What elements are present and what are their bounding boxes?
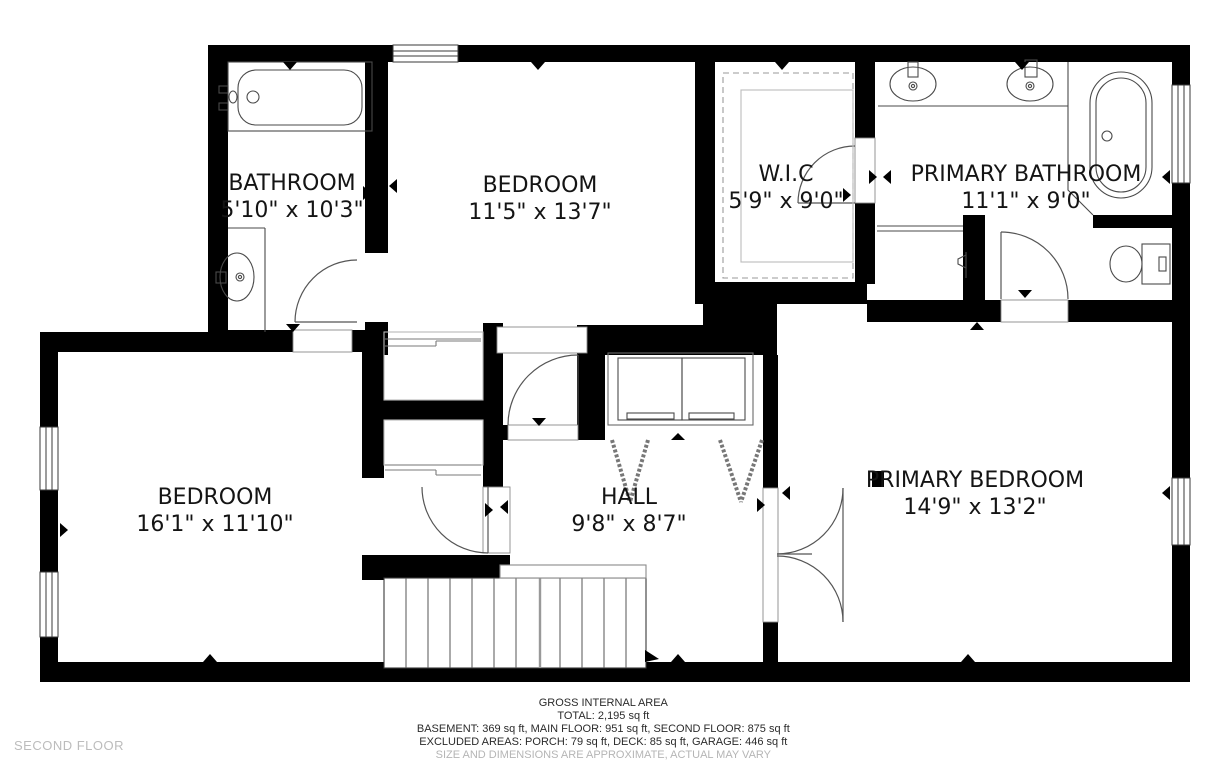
primary-bathroom-door: [1001, 232, 1068, 299]
toilet: [1110, 244, 1170, 284]
room-name: PRIMARY BEDROOM: [866, 467, 1084, 494]
stairs: [384, 565, 659, 668]
primary-bedroom-double-door: [777, 488, 843, 622]
hall-closet: [608, 353, 753, 425]
bedroom-left-door: [422, 487, 488, 553]
floor-plan-canvas: [0, 0, 1229, 768]
area-per-floor: BASEMENT: 369 sq ft, MAIN FLOOR: 951 sq …: [417, 723, 790, 736]
room-dimensions: 14'9" x 13'2": [866, 494, 1084, 521]
room-dimensions: 11'5" x 13'7": [468, 199, 611, 226]
room-name: BEDROOM: [136, 484, 293, 511]
fixtures: [216, 60, 1170, 668]
floor-plan-page: BATHROOM 5'10" x 10'3" BEDROOM 11'5" x 1…: [0, 0, 1229, 768]
room-label-hall: HALL 9'8" x 8'7": [571, 484, 686, 538]
area-summary: GROSS INTERNAL AREA TOTAL: 2,195 sq ft B…: [417, 697, 790, 762]
room-label-wic: W.I.C 5'9" x 9'0": [728, 161, 843, 215]
area-summary-title: GROSS INTERNAL AREA: [417, 697, 790, 710]
area-disclaimer: SIZE AND DIMENSIONS ARE APPROXIMATE, ACT…: [417, 749, 790, 762]
area-total: TOTAL: 2,195 sq ft: [417, 710, 790, 723]
room-label-bedroom-left: BEDROOM 16'1" x 11'10": [136, 484, 293, 538]
window-left-upper: [40, 427, 58, 490]
room-name: W.I.C: [728, 161, 843, 188]
shower: [877, 226, 966, 278]
bedroom-top-door: [508, 355, 578, 425]
window-top: [393, 45, 458, 62]
room-dimensions: 9'8" x 8'7": [571, 511, 686, 538]
window-right-bathroom: [1172, 85, 1190, 183]
room-dimensions: 16'1" x 11'10": [136, 511, 293, 538]
room-name: BEDROOM: [468, 172, 611, 199]
bathtub: [219, 62, 372, 131]
room-name: HALL: [571, 484, 686, 511]
window-right-bedroom: [1172, 478, 1190, 545]
room-name: PRIMARY BATHROOM: [911, 161, 1142, 188]
room-dimensions: 11'1" x 9'0": [911, 188, 1142, 215]
room-name: BATHROOM: [220, 170, 363, 197]
area-excluded: EXCLUDED AREAS: PORCH: 79 sq ft, DECK: 8…: [417, 736, 790, 749]
room-label-bathroom: BATHROOM 5'10" x 10'3": [220, 170, 363, 224]
room-label-bedroom-top: BEDROOM 11'5" x 13'7": [468, 172, 611, 226]
stair-direction-arrow: [645, 650, 659, 662]
floor-label: SECOND FLOOR: [14, 738, 124, 753]
room-dimensions: 5'10" x 10'3": [220, 197, 363, 224]
room-dimensions: 5'9" x 9'0": [728, 188, 843, 215]
room-label-primary-bathroom: PRIMARY BATHROOM 11'1" x 9'0": [911, 161, 1142, 215]
bathroom-door: [295, 260, 357, 322]
window-left-lower: [40, 572, 58, 637]
room-label-primary-bedroom: PRIMARY BEDROOM 14'9" x 13'2": [866, 467, 1084, 521]
